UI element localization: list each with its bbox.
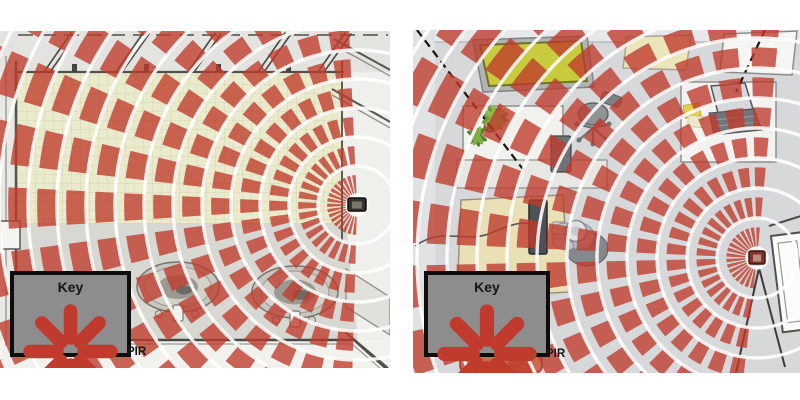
washroom-coverage-panel: Key PIR: [0, 31, 390, 368]
office-coverage-panel: Key PIR: [413, 30, 800, 373]
key-legend: Key PIR: [10, 271, 131, 357]
key-item-label: PIR: [546, 348, 565, 360]
key-legend: Key PIR: [424, 271, 550, 357]
sensor-coverage-figure: Key PIR: [0, 0, 800, 400]
pir-asterisk-icon: [435, 302, 539, 373]
key-item-pir: PIR: [435, 302, 539, 373]
key-item-pir: PIR: [21, 302, 120, 368]
key-title: Key: [435, 279, 539, 295]
key-item-label: PIR: [127, 346, 146, 358]
wall-sensor: [749, 251, 765, 264]
wall-sensor: [348, 198, 366, 211]
pir-asterisk-icon: [21, 302, 120, 368]
key-title: Key: [21, 279, 120, 295]
